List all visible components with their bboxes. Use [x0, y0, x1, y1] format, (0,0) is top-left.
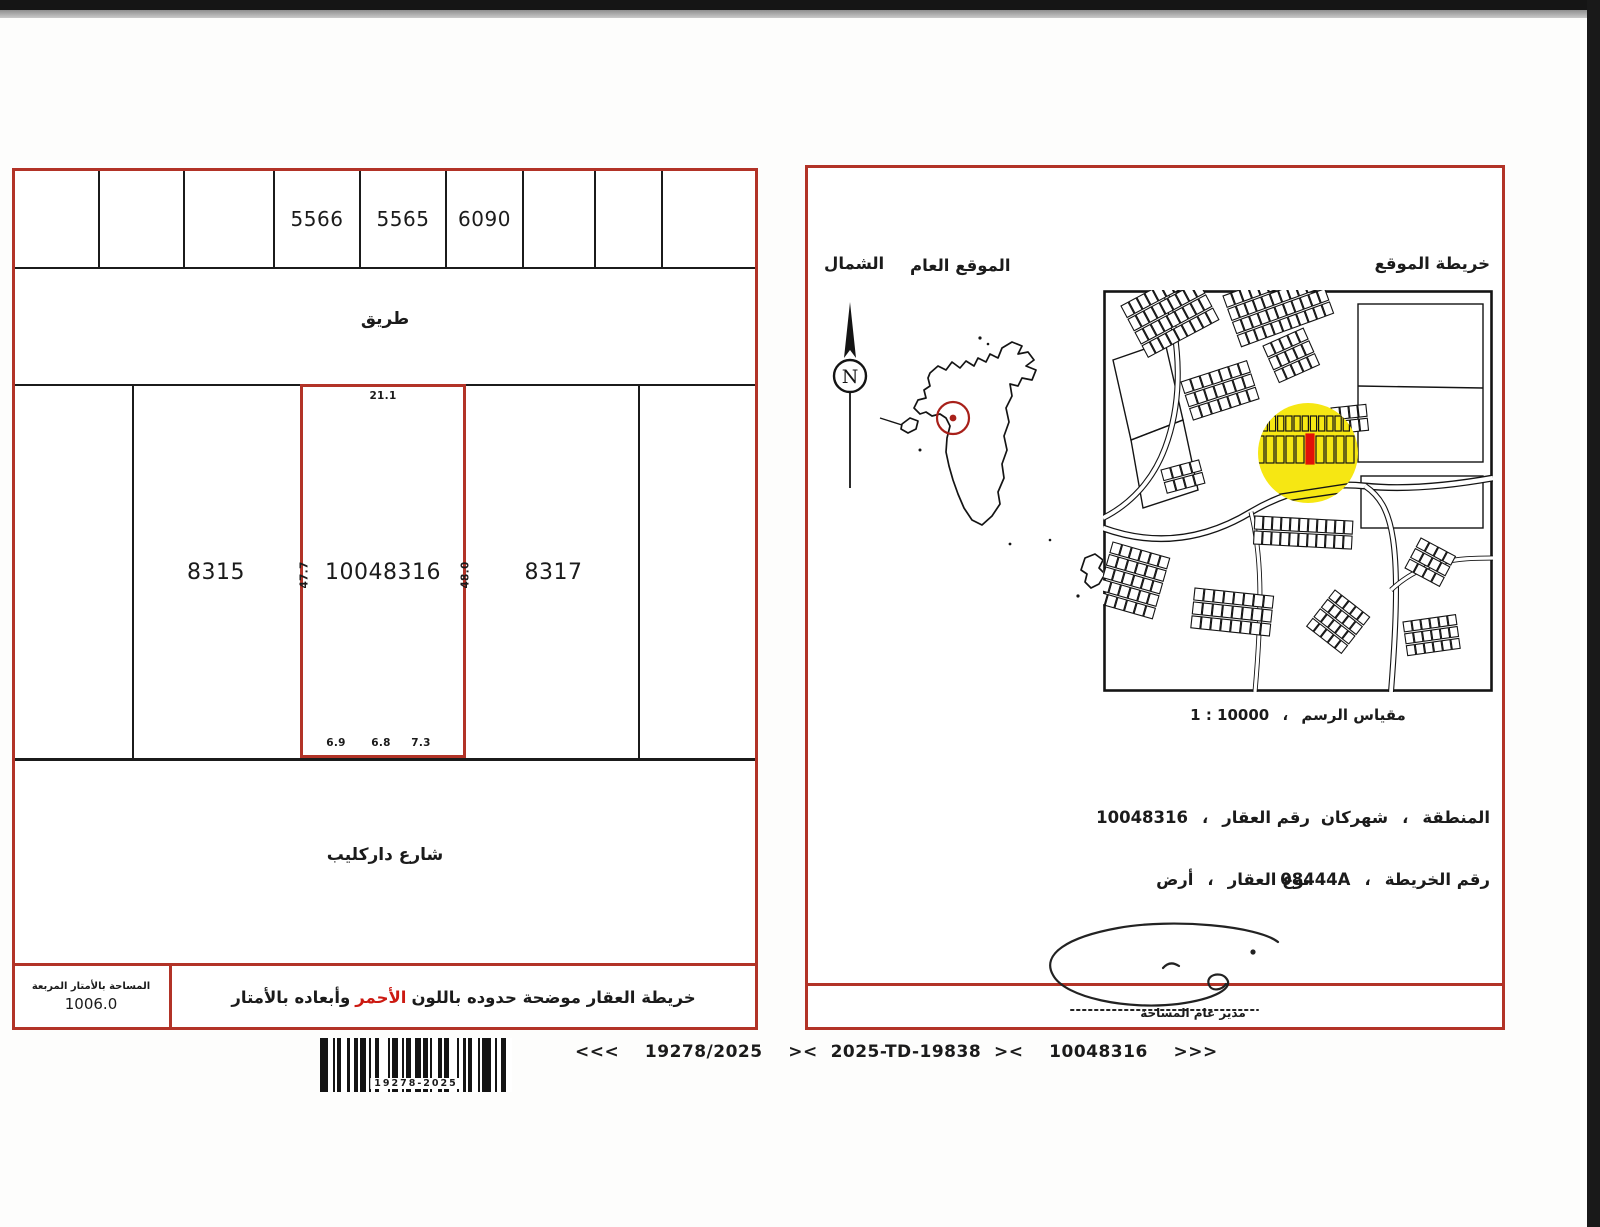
viewer-right-bar — [1587, 0, 1600, 1227]
compass-n-letter: N — [842, 366, 859, 388]
area-value: 1006.0 — [65, 995, 118, 1013]
top-plot-cell: 5566 — [275, 171, 361, 267]
barcode-bar — [482, 1038, 490, 1092]
dimension-right-side: 48.0 — [460, 561, 472, 588]
plot-map-panel: 556655656090 طريق 8315 10048316 8317 21.… — [12, 168, 758, 1030]
top-plot-cell — [524, 171, 596, 267]
dimension-bottom-1: 6.9 — [316, 737, 356, 749]
note-highlight: الأحمر — [355, 988, 406, 1007]
plot-divider-right — [638, 384, 640, 760]
note-suffix: وأبعاده بالأمتار — [231, 988, 350, 1007]
general-location-label: الموقع العام — [910, 256, 1011, 275]
detail-street-map — [1103, 290, 1493, 692]
barcode-bar — [320, 1038, 328, 1092]
subject-plot-number: 10048316 — [300, 560, 466, 585]
area-label: المساحة بالأمتار المربعة — [32, 981, 150, 992]
location-map-label: خريطة الموقع — [1374, 254, 1490, 273]
field-parcel-number: رقم العقار،10048316 — [1096, 808, 1310, 827]
field-area-name: المنطقة،شهركان — [1321, 808, 1490, 827]
signatory-title: مدير عام المساحة — [1108, 1006, 1278, 1020]
barcode: 19278-2025 — [320, 1038, 512, 1092]
viewer-top-bar — [0, 0, 1600, 10]
area-box: المساحة بالأمتار المربعة 1006.0 — [15, 967, 167, 1027]
top-plot-cell: 5565 — [361, 171, 447, 267]
barcode-label: 19278-2025 — [370, 1078, 461, 1089]
viewer-top-gray-strip — [0, 10, 1600, 18]
note-prefix: خريطة العقار موضحة حدوده باللون — [411, 988, 695, 1007]
top-plots-row: 556655656090 — [15, 171, 755, 269]
map-note: خريطة العقار موضحة حدوده باللون الأحمر و… — [172, 967, 755, 1027]
top-plot-cell — [663, 171, 755, 267]
field-map-number: رقم الخريطة،08444A — [1280, 870, 1490, 889]
plot-number-right: 8317 — [469, 560, 638, 585]
dimension-top: 21.1 — [300, 390, 466, 402]
dimension-bottom-3: 7.3 — [401, 737, 441, 749]
signature — [1023, 920, 1298, 1020]
top-plot-cell — [596, 171, 663, 267]
plot-number-left: 8315 — [132, 560, 300, 585]
dimension-bottom-2: 6.8 — [361, 737, 401, 749]
middle-row-bottom-line — [15, 758, 755, 761]
top-plot-cell — [15, 171, 100, 267]
barcode-bar — [506, 1038, 512, 1092]
top-plot-cell: 6090 — [447, 171, 524, 267]
top-plot-cell — [100, 171, 185, 267]
footer-strip-line — [15, 963, 755, 966]
dimension-left-side: 47.7 — [299, 561, 311, 588]
north-label: الشمال — [824, 254, 884, 273]
scale-label: مقياس الرسم ، 1 : 10000 — [1103, 706, 1493, 724]
location-panel: الشمال الموقع العام خريطة الموقع N — [805, 165, 1505, 1030]
bahrain-outline-map — [860, 328, 1122, 620]
document-reference: <<< 19278/2025 >< 2025-TD-19838 >< 10048… — [575, 1042, 1218, 1062]
street-name-label: شارع داركليب — [15, 845, 755, 865]
road-label: طريق — [15, 309, 755, 329]
top-plot-cell — [185, 171, 275, 267]
